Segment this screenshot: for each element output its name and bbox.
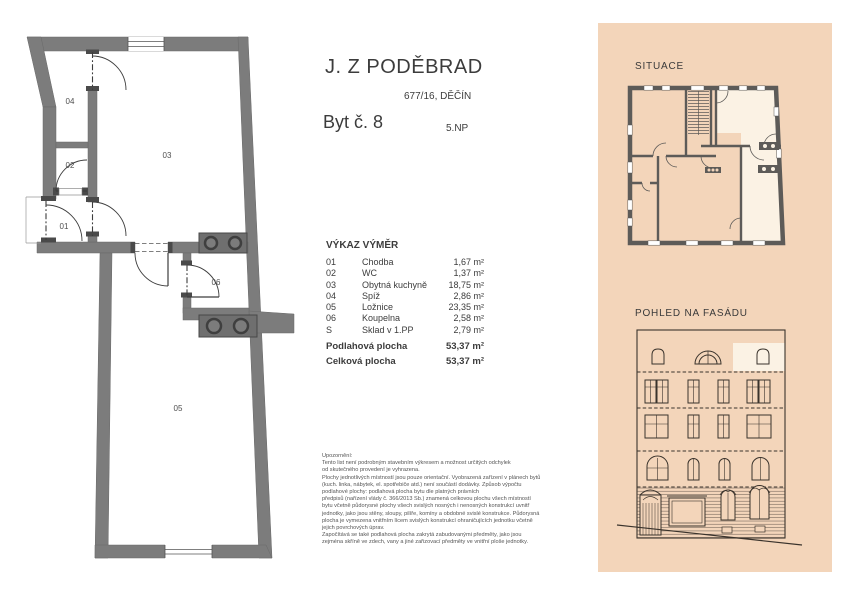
row-code: 02 (326, 268, 362, 279)
facade-highlight-unit (733, 343, 785, 371)
situation-plan (628, 86, 783, 245)
room-label-loznice: 05 (174, 404, 183, 413)
window-bottom (165, 545, 212, 558)
row-name: Obytná kuchyně (362, 280, 448, 291)
notes-line: bytu včetně půdorysné plochy všech svisl… (322, 503, 607, 510)
row-area: 1,67 m² (453, 257, 484, 268)
shop-window (667, 496, 707, 526)
notes-line: od skutečného provedení je vyhrazena. (322, 467, 607, 474)
row-area: 23,35 m² (448, 302, 484, 313)
room-label-spiz: 04 (66, 97, 75, 106)
row-name: Chodba (362, 257, 453, 268)
side-panel: SITUACE POHLED NA FASÁDU (598, 23, 832, 572)
panel-drawings (598, 23, 832, 572)
wc-door-panel (59, 189, 82, 196)
apartment-floor-plan: 04 03 02 01 06 05 (0, 0, 310, 595)
notes-heading: Upozornění: (322, 453, 607, 460)
room-label-wc: 02 (66, 161, 75, 170)
notes-line: plocha je vymezena vnitřním lícem svislý… (322, 518, 607, 525)
row-code: 03 (326, 280, 362, 291)
row-code: 01 (326, 257, 362, 268)
notes-line: jejich povrchových úprav. (322, 525, 607, 532)
table-row: 05 Ložnice 23,35 m² (326, 302, 484, 313)
notes-line: Plochy jednotlivých místností jsou pouze… (322, 475, 607, 482)
window-top (128, 37, 164, 51)
table-row: 06 Koupelna 2,58 m² (326, 313, 484, 324)
kitchen-counter-icon (199, 233, 247, 253)
basement-vent (722, 527, 732, 533)
middle-floor-windows (645, 415, 771, 438)
apartment-plan-sheet: 04 03 02 01 06 05 J. Z PODĚBRAD 677/16, … (0, 0, 841, 595)
disclaimer-notes: Upozornění: Tento list není podrobným st… (322, 453, 607, 547)
row-code: 05 (326, 302, 362, 313)
total-row-total-area: Celková plocha 53,37 m² (326, 356, 484, 367)
walls (27, 37, 294, 558)
table-row: 04 Spíž 2,86 m² (326, 291, 484, 302)
row-name: WC (362, 268, 453, 279)
upper-floor-windows (645, 380, 770, 403)
room-label-kuchyne: 03 (163, 151, 172, 160)
floor-separator-lines (637, 372, 785, 487)
area-table-title: VÝKAZ VÝMĚR (326, 240, 484, 251)
unit-title: Byt č. 8 (323, 112, 383, 133)
room-label-koupelna: 06 (212, 278, 221, 287)
notes-line: Započítává se také podlahová plocha zakr… (322, 532, 607, 539)
document-address: 677/16, DĚČÍN (404, 91, 471, 102)
row-area: 1,37 m² (453, 268, 484, 279)
floor-label: 5.NP (446, 123, 468, 134)
total-area: 53,37 m² (446, 341, 484, 352)
arched-floor-windows (647, 456, 769, 480)
page-title: J. Z PODĚBRAD (325, 56, 483, 79)
table-row: S Sklad v 1.PP 2,79 m² (326, 325, 484, 336)
facade-elevation (617, 330, 802, 545)
opening-dashes (135, 244, 168, 252)
situation-counter-icon (705, 167, 721, 173)
notes-line: Tento list není podrobným stavebním výkr… (322, 460, 607, 467)
row-code: S (326, 325, 362, 336)
row-code: 04 (326, 291, 362, 302)
table-row: 02 WC 1,37 m² (326, 268, 484, 279)
notes-line: jednotky, jako jsou stěny, sloupy, pilíř… (322, 511, 607, 518)
door-jambs (41, 50, 192, 298)
total-area: 53,37 m² (446, 356, 484, 367)
stair-icon (688, 91, 709, 135)
notes-line: zejména skříně ve zdech, vany a jiné zař… (322, 539, 607, 546)
notes-line: (kuch. linka, nábytek, el. spotřebiče at… (322, 482, 607, 489)
row-name: Ložnice (362, 302, 448, 313)
total-label: Podlahová plocha (326, 341, 446, 352)
room-label-chodba: 01 (60, 222, 69, 231)
total-row-floor-area: Podlahová plocha 53,37 m² (326, 341, 484, 352)
ground-arched-window-right (749, 486, 770, 520)
row-name: Koupelna (362, 313, 453, 324)
row-name: Sklad v 1.PP (362, 325, 453, 336)
basement-vent (755, 526, 765, 532)
row-area: 18,75 m² (448, 280, 484, 291)
ground-arched-window-left (720, 490, 736, 520)
area-table: VÝKAZ VÝMĚR 01 Chodba 1,67 m² 02 WC 1,37… (326, 240, 484, 367)
row-name: Spíž (362, 291, 453, 302)
row-area: 2,86 m² (453, 291, 484, 302)
washbasin-counter-icon (199, 315, 257, 337)
door-swing-arcs (46, 56, 219, 297)
row-area: 2,58 m² (453, 313, 484, 324)
door-leaves (46, 52, 187, 297)
table-row: 03 Obytná kuchyně 18,75 m² (326, 280, 484, 291)
row-code: 06 (326, 313, 362, 324)
total-label: Celková plocha (326, 356, 446, 367)
table-row: 01 Chodba 1,67 m² (326, 257, 484, 268)
entrance-niche-lines (26, 197, 41, 243)
row-area: 2,79 m² (453, 325, 484, 336)
